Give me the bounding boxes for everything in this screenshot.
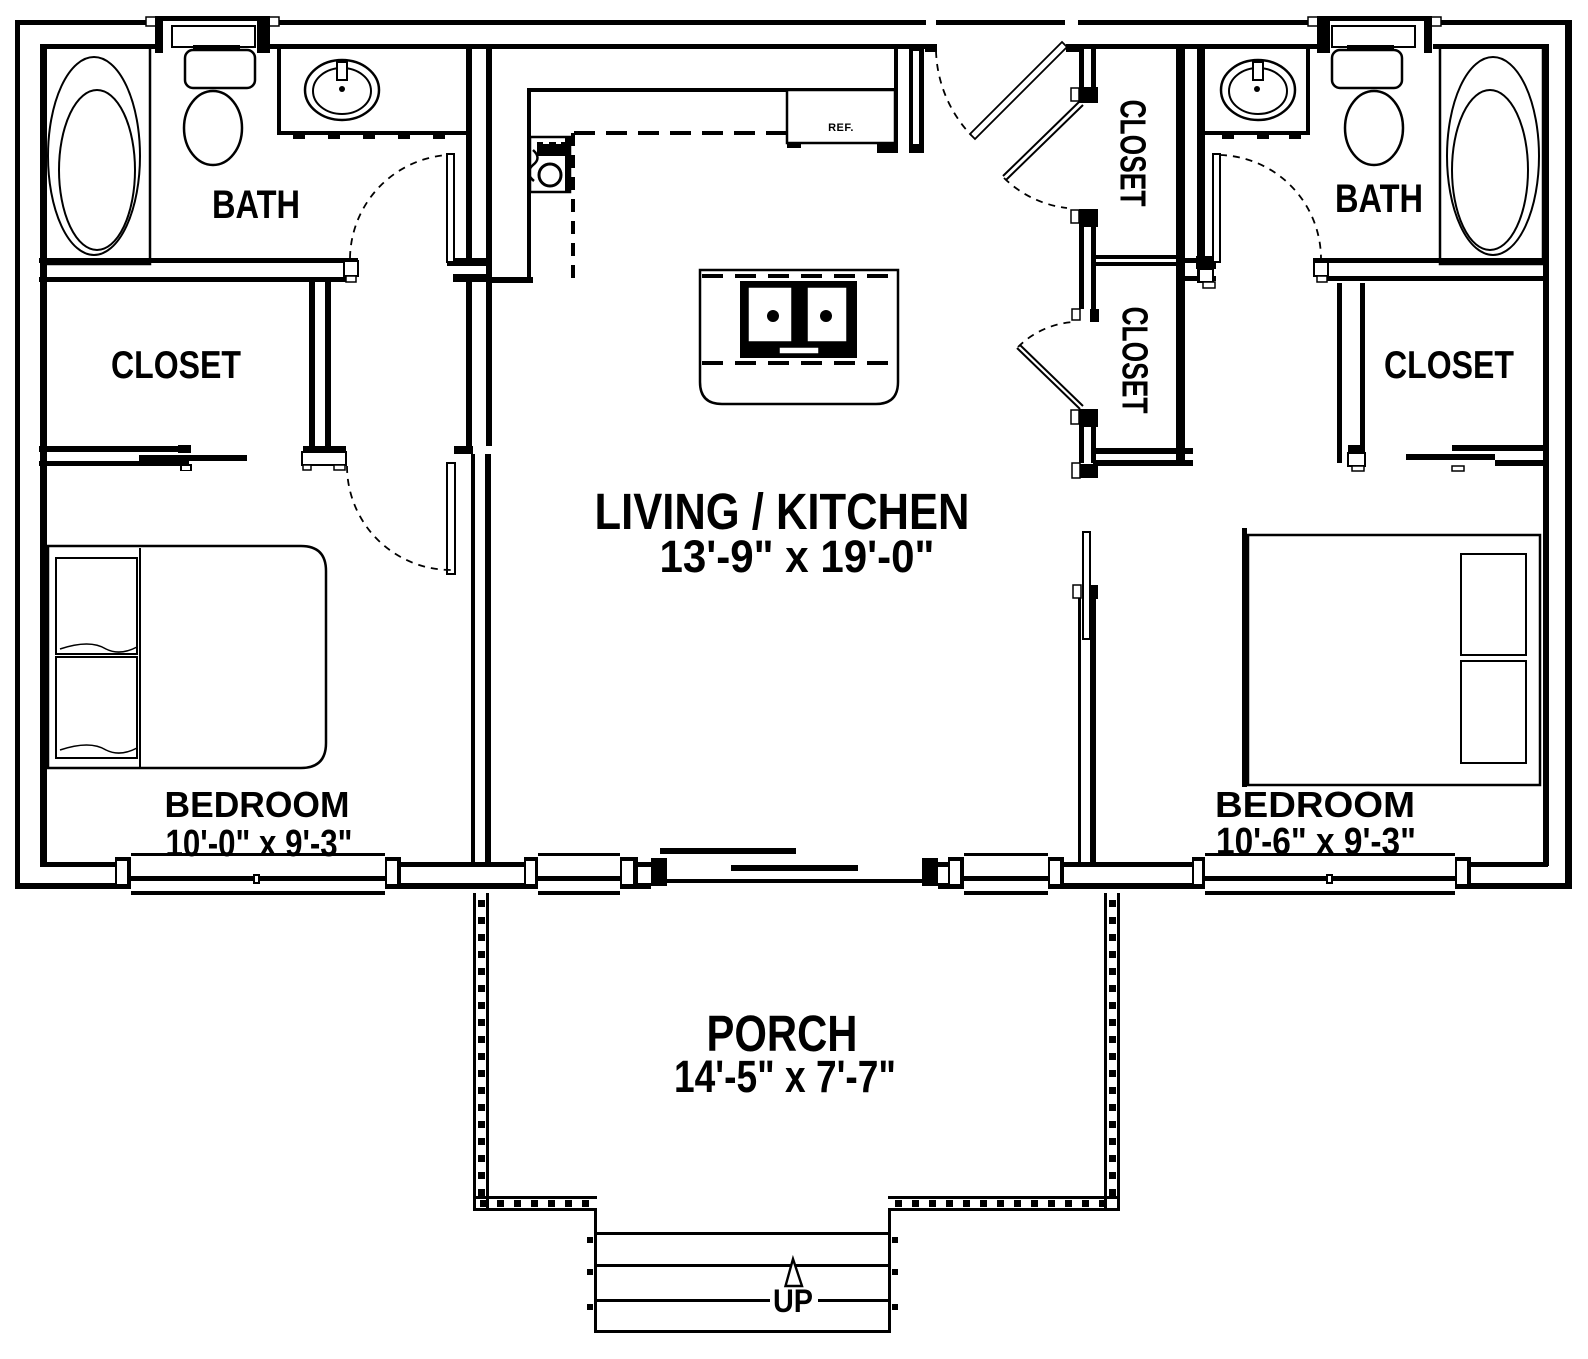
svg-text:CLOSET: CLOSET	[1384, 344, 1514, 387]
svg-text:CLOSET: CLOSET	[111, 344, 241, 387]
svg-text:BATH: BATH	[1335, 177, 1423, 221]
svg-text:BEDROOM: BEDROOM	[1215, 784, 1415, 825]
svg-text:13'-9" x 19'-0": 13'-9" x 19'-0"	[660, 531, 935, 582]
svg-text:BEDROOM: BEDROOM	[165, 784, 350, 825]
svg-text:UP: UP	[773, 1283, 813, 1319]
svg-text:CLOSET: CLOSET	[1113, 100, 1154, 207]
svg-text:REF.: REF.	[828, 122, 854, 134]
svg-text:14'-5" x 7'-7": 14'-5" x 7'-7"	[674, 1051, 896, 1102]
svg-text:10'-0" x 9'-3": 10'-0" x 9'-3"	[166, 823, 353, 865]
svg-text:10'-6" x 9'-3": 10'-6" x 9'-3"	[1216, 821, 1416, 863]
svg-text:CLOSET: CLOSET	[1115, 307, 1156, 414]
svg-text:BATH: BATH	[212, 183, 300, 227]
